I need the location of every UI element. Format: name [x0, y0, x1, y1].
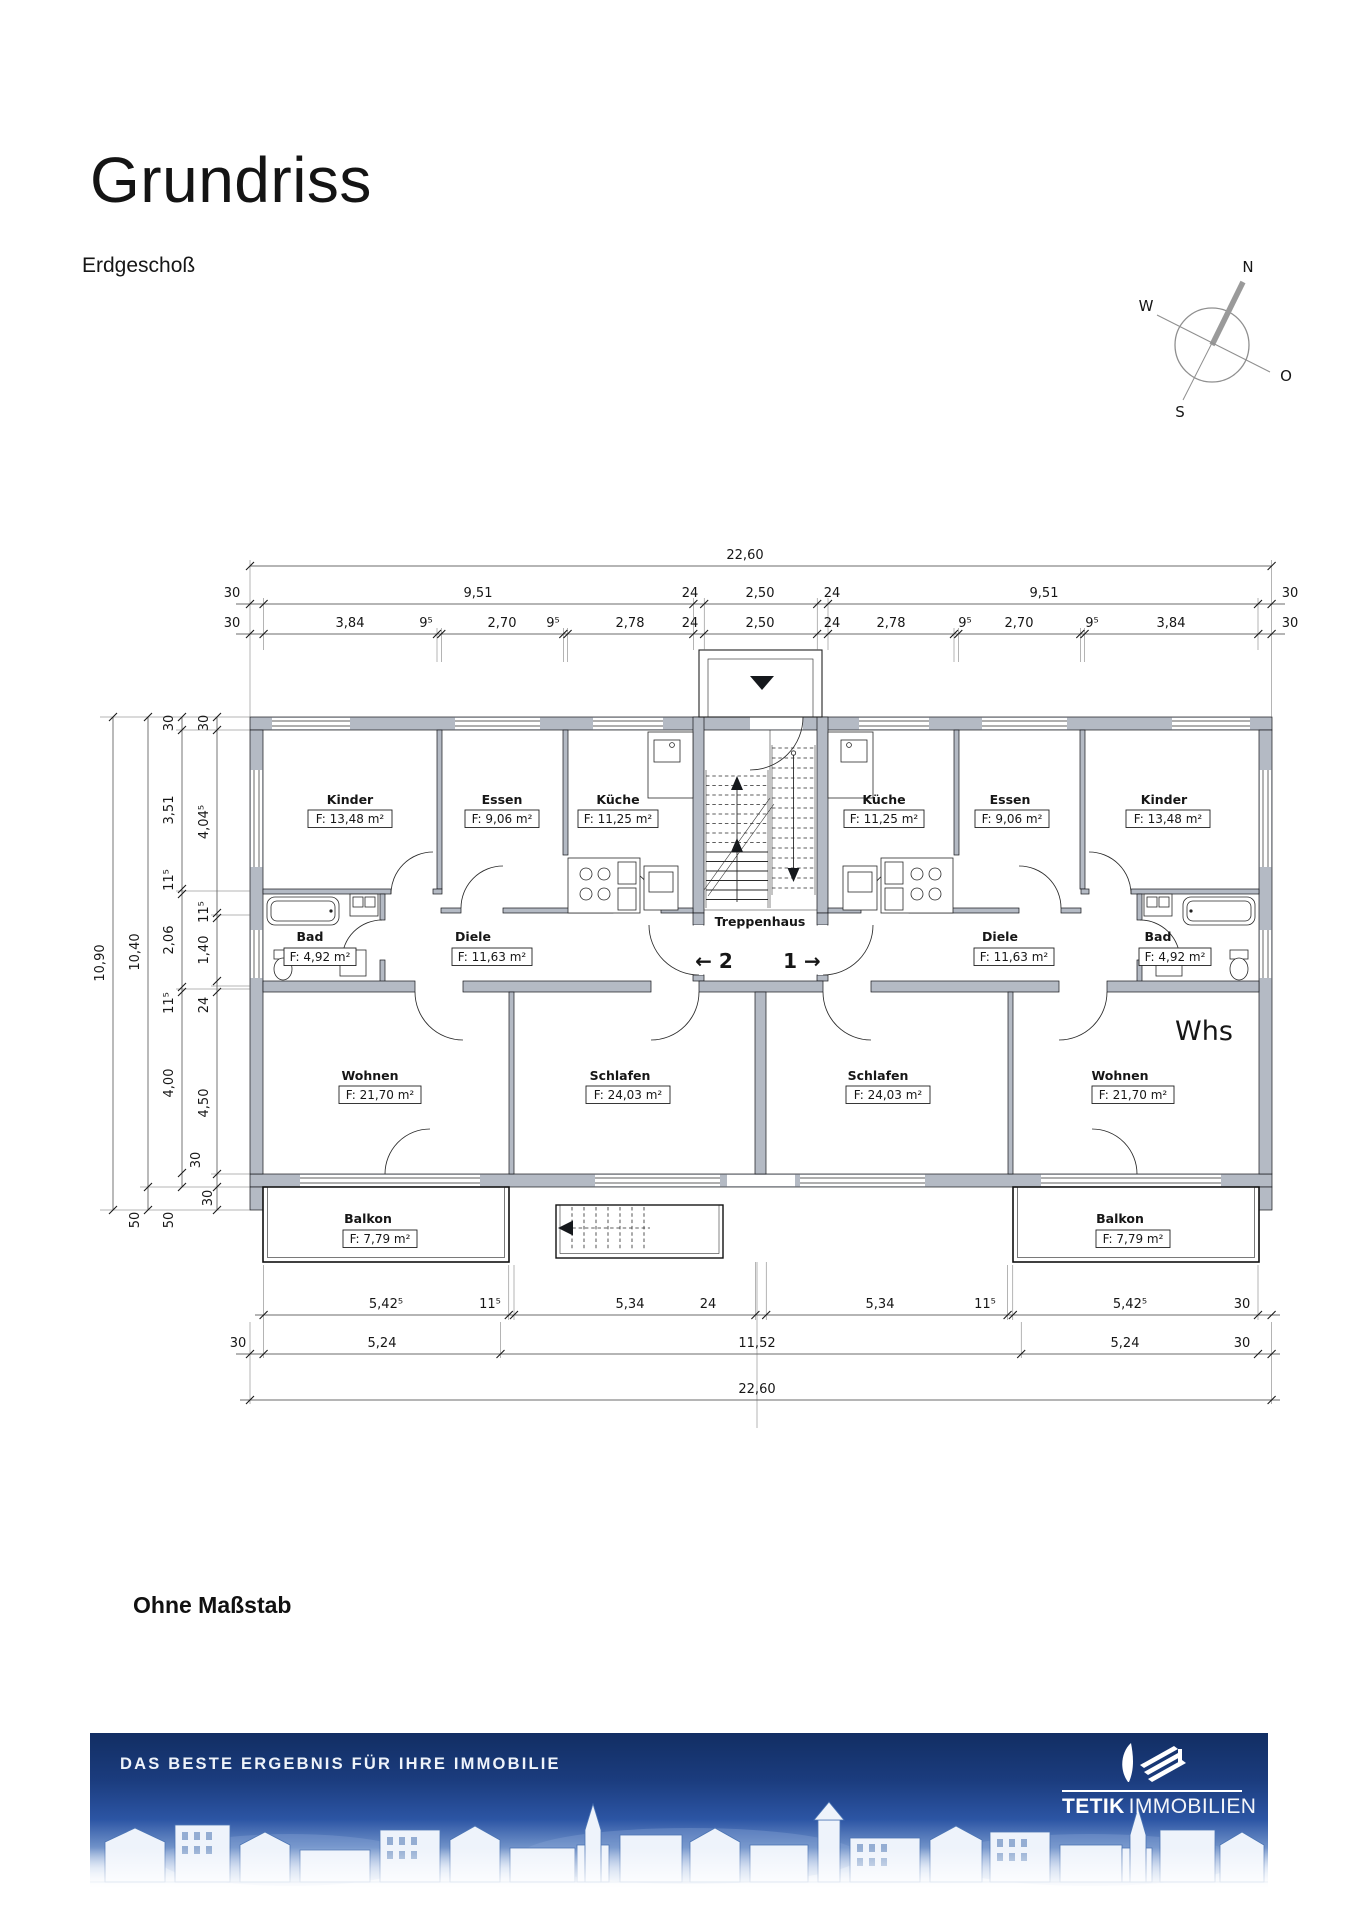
svg-text:24: 24	[682, 586, 699, 601]
svg-text:3,84: 3,84	[336, 616, 365, 631]
stairwell-label: Treppenhaus	[715, 914, 806, 929]
room-area-diele-right: F: 11,63 m²	[980, 950, 1049, 964]
svg-text:24: 24	[824, 616, 841, 631]
svg-text:24: 24	[682, 616, 699, 631]
svg-text:5,34: 5,34	[866, 1297, 895, 1312]
svg-text:24: 24	[197, 997, 212, 1014]
room-name-schlafen-left: Schlafen	[590, 1068, 651, 1083]
svg-text:30: 30	[162, 715, 177, 732]
svg-text:9,51: 9,51	[1030, 586, 1059, 601]
room-name-balkon-right: Balkon	[1096, 1211, 1144, 1226]
compass-s-label: S	[1175, 403, 1185, 421]
room-name-bad-right: Bad	[1145, 929, 1172, 944]
brand-logo-rule	[1062, 1790, 1242, 1792]
room-name-balkon-left: Balkon	[344, 1211, 392, 1226]
svg-text:50: 50	[128, 1212, 143, 1229]
svg-text:11⁵: 11⁵	[974, 1297, 996, 1312]
room-area-balkon-right: F: 7,79 m²	[1103, 1232, 1164, 1246]
svg-text:2,50: 2,50	[746, 586, 775, 601]
svg-text:5,24: 5,24	[1111, 1336, 1140, 1351]
svg-text:5,24: 5,24	[368, 1336, 397, 1351]
room-area-wohnen-left: F: 21,70 m²	[346, 1088, 415, 1102]
room-name-diele-left: Diele	[455, 929, 491, 944]
svg-text:2,50: 2,50	[746, 616, 775, 631]
brand-logo: TETIKIMMOBILIEN	[1062, 1741, 1242, 1819]
svg-text:11⁵: 11⁵	[162, 992, 177, 1014]
svg-text:9⁵: 9⁵	[958, 616, 971, 631]
svg-text:2,78: 2,78	[877, 616, 906, 631]
room-name-kinder-left: Kinder	[327, 792, 374, 807]
svg-text:30: 30	[230, 1336, 247, 1351]
room-area-essen-left: F: 9,06 m²	[472, 812, 533, 826]
svg-text:30: 30	[224, 586, 241, 601]
svg-text:9,51: 9,51	[464, 586, 493, 601]
svg-text:2,06: 2,06	[162, 926, 177, 955]
brand-name-light: IMMOBILIEN	[1129, 1795, 1257, 1818]
dimensions-left: 10,90 10,40 50 30 3,51 11⁵ 2,06 11⁵ 4,00…	[93, 713, 250, 1228]
svg-text:30: 30	[1234, 1297, 1251, 1312]
room-area-diele-left: F: 11,63 m²	[458, 950, 527, 964]
svg-text:30: 30	[1282, 616, 1299, 631]
brand-logo-icon	[1116, 1741, 1188, 1783]
svg-text:2,70: 2,70	[488, 616, 517, 631]
room-area-essen-right: F: 9,06 m²	[982, 812, 1043, 826]
svg-text:24: 24	[824, 586, 841, 601]
svg-text:9⁵: 9⁵	[546, 616, 559, 631]
svg-text:30: 30	[1234, 1336, 1251, 1351]
svg-text:11⁵: 11⁵	[162, 869, 177, 891]
stairs	[694, 730, 827, 975]
svg-text:4,50: 4,50	[197, 1089, 212, 1118]
svg-text:9⁵: 9⁵	[1085, 616, 1098, 631]
room-area-bad-right: F: 4,92 m²	[1145, 950, 1206, 964]
room-name-essen-left: Essen	[482, 792, 523, 807]
footer-tagline: DAS BESTE ERGEBNIS FÜR IHRE IMMOBILIE	[120, 1755, 561, 1774]
room-area-kinder-left: F: 13,48 m²	[316, 812, 385, 826]
compass-rose: N W O S	[1139, 258, 1292, 421]
svg-text:5,34: 5,34	[616, 1297, 645, 1312]
svg-text:11⁵: 11⁵	[197, 901, 212, 923]
room-area-wohnen-right: F: 21,70 m²	[1099, 1088, 1168, 1102]
room-name-kueche-left: Küche	[596, 792, 639, 807]
room-area-kueche-left: F: 11,25 m²	[584, 812, 653, 826]
room-area-kueche-right: F: 11,25 m²	[850, 812, 919, 826]
room-area-bad-left: F: 4,92 m²	[290, 950, 351, 964]
whs-label: Whs	[1175, 1016, 1233, 1047]
dimensions-top: 22,60 30 9,51 24 2,50 24 9,51 30 30 3,84…	[224, 548, 1299, 717]
svg-text:50: 50	[162, 1212, 177, 1229]
svg-text:4,00: 4,00	[162, 1069, 177, 1098]
svg-text:30: 30	[197, 715, 212, 732]
compass-o-label: O	[1280, 367, 1292, 385]
room-area-balkon-left: F: 7,79 m²	[350, 1232, 411, 1246]
room-name-kueche-right: Küche	[862, 792, 905, 807]
room-area-schlafen-left: F: 24,03 m²	[594, 1088, 663, 1102]
svg-text:3,51: 3,51	[162, 796, 177, 825]
dimensions-bottom: 5,42⁵ 11⁵ 5,34 24 5,34 11⁵ 5,42⁵ 30 30 5…	[230, 1262, 1280, 1428]
room-name-schlafen-right: Schlafen	[848, 1068, 909, 1083]
svg-text:30: 30	[189, 1152, 204, 1169]
svg-text:30: 30	[201, 1190, 216, 1207]
footer-banner: DAS BESTE ERGEBNIS FÜR IHRE IMMOBILIE TE…	[90, 1733, 1268, 1890]
scale-note: Ohne Maßstab	[133, 1592, 291, 1619]
svg-text:30: 30	[224, 616, 241, 631]
svg-text:3,84: 3,84	[1157, 616, 1186, 631]
svg-text:9⁵: 9⁵	[419, 616, 432, 631]
room-name-wohnen-left: Wohnen	[341, 1068, 398, 1083]
svg-text:30: 30	[1282, 586, 1299, 601]
room-name-wohnen-right: Wohnen	[1091, 1068, 1148, 1083]
room-name-diele-right: Diele	[982, 929, 1018, 944]
room-name-kinder-right: Kinder	[1141, 792, 1188, 807]
svg-text:2,78: 2,78	[616, 616, 645, 631]
apartment-1-number: 1 →	[783, 949, 821, 973]
apartment-2-number: ← 2	[695, 949, 733, 973]
svg-text:5,42⁵: 5,42⁵	[369, 1297, 403, 1312]
svg-text:2,70: 2,70	[1005, 616, 1034, 631]
room-area-kinder-right: F: 13,48 m²	[1134, 812, 1203, 826]
svg-text:11⁵: 11⁵	[479, 1297, 501, 1312]
room-name-essen-right: Essen	[990, 792, 1031, 807]
entrance-arrow-icon	[750, 676, 774, 690]
svg-text:1,40: 1,40	[197, 936, 212, 965]
floor-plan: N W O S	[0, 0, 1357, 1920]
dim-left-total: 10,90	[93, 944, 108, 981]
exterior-stair	[556, 1205, 723, 1258]
dim-top-total: 22,60	[726, 548, 763, 563]
dim-bottom-total: 22,60	[738, 1382, 775, 1397]
compass-n-label: N	[1242, 258, 1253, 276]
svg-text:4,04⁵: 4,04⁵	[197, 805, 212, 839]
room-name-bad-left: Bad	[297, 929, 324, 944]
room-area-schlafen-right: F: 24,03 m²	[854, 1088, 923, 1102]
brand-name-bold: TETIK	[1062, 1795, 1125, 1818]
svg-text:10,40: 10,40	[128, 933, 143, 970]
interior-walls	[263, 717, 1259, 1174]
entrance-vestibule	[699, 650, 822, 729]
svg-text:5,42⁵: 5,42⁵	[1113, 1297, 1147, 1312]
svg-text:11,52: 11,52	[738, 1336, 775, 1351]
compass-w-label: W	[1139, 297, 1154, 315]
svg-text:24: 24	[700, 1297, 717, 1312]
